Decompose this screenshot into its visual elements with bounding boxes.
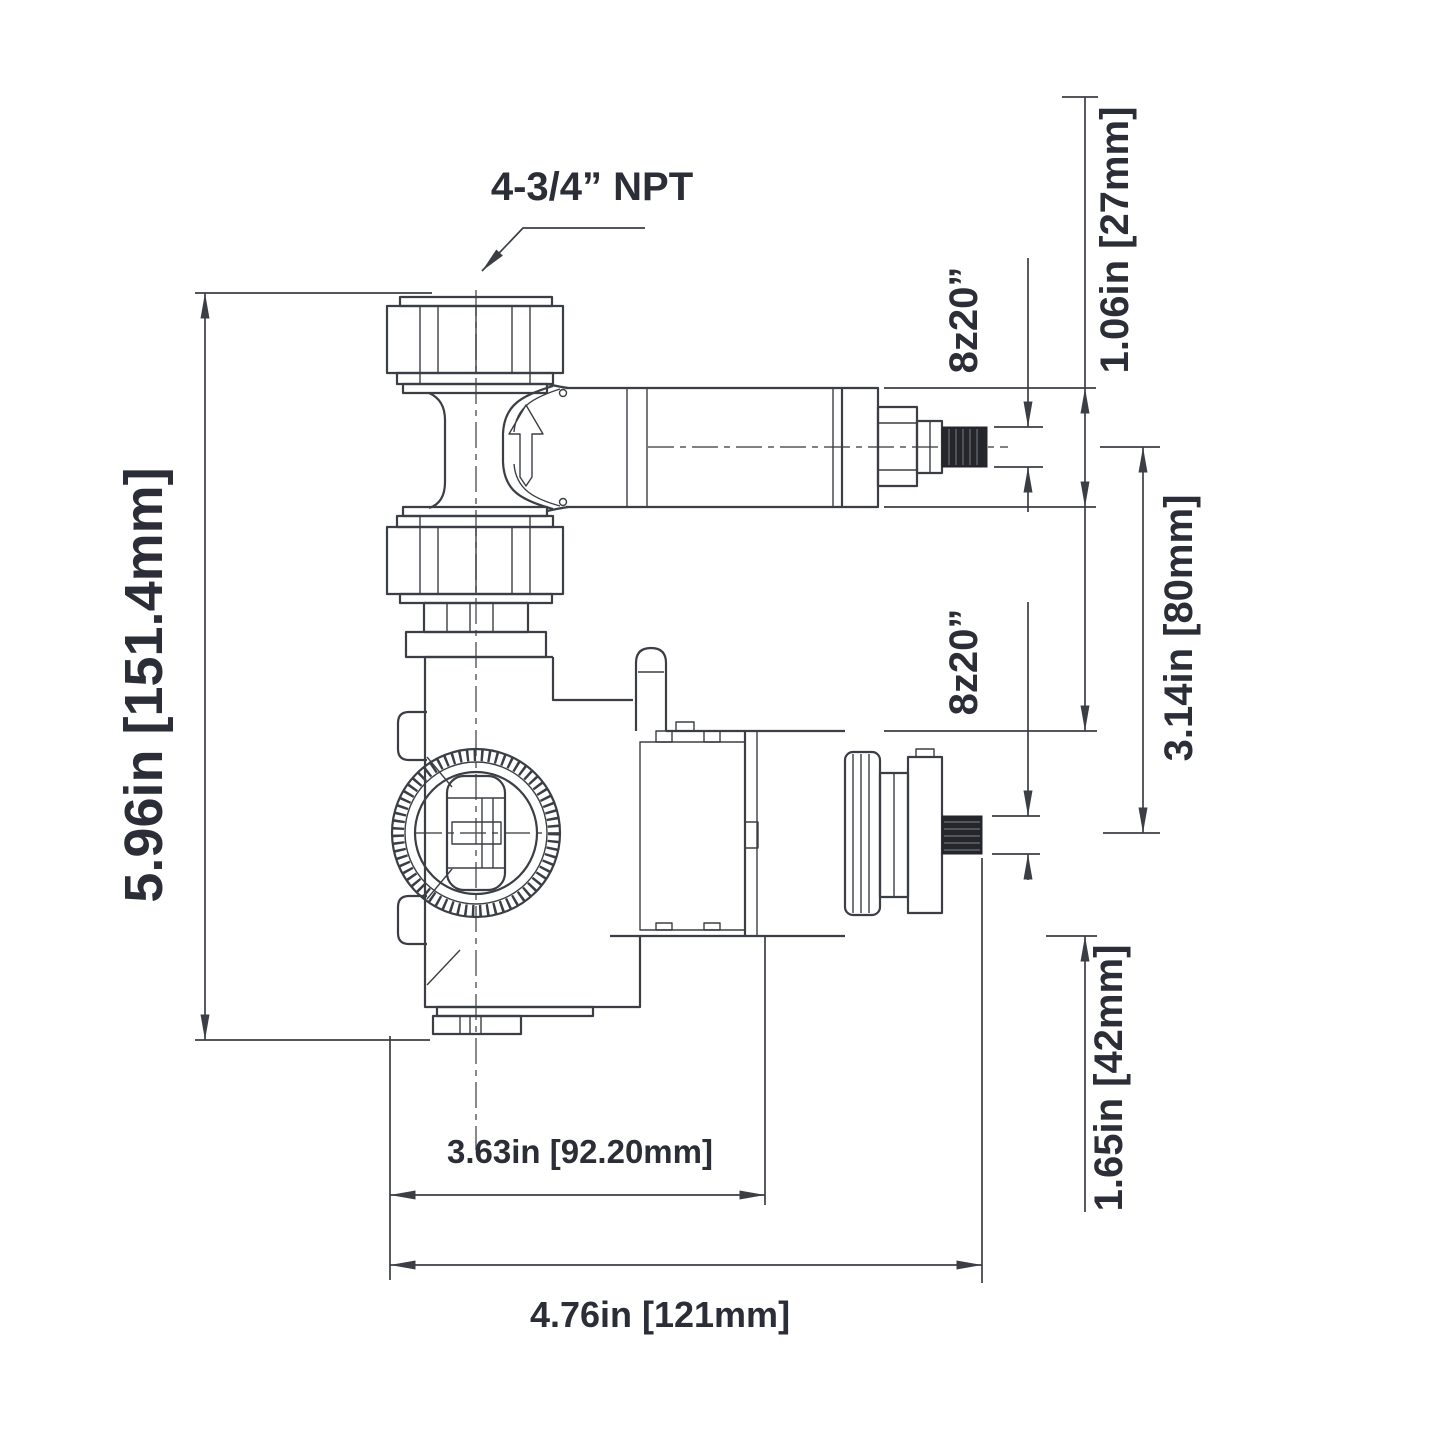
npt-callout-label: 4-3/4” NPT — [491, 165, 693, 209]
dim-label-overall-depth: 4.76in [121mm] — [530, 1294, 790, 1335]
dim-label-overall-height: 5.96in [151.4mm] — [114, 467, 174, 902]
bottom-union-nut — [387, 527, 563, 594]
upper-valve-assembly — [387, 297, 987, 657]
valve-body — [425, 657, 640, 1007]
bottom-outlet — [433, 1016, 521, 1034]
top-tube — [636, 648, 666, 731]
dim-label-body-depth: 3.63in [92.20mm] — [447, 1133, 713, 1170]
top-union-nut — [387, 306, 563, 373]
dimension-labels: 4-3/4” NPT 5.96in [151.4mm] 1.06in [27mm… — [114, 107, 1201, 1335]
dim-label-pipe-od: 1.06in [27mm] — [1093, 107, 1137, 374]
lower-valve-assembly — [392, 648, 982, 1034]
flow-direction-arrow-icon — [509, 405, 543, 486]
dimension-lines — [195, 97, 1160, 1283]
valve-technical-drawing-page: 4-3/4” NPT 5.96in [151.4mm] 1.06in [27mm… — [0, 0, 1445, 1445]
valve-technical-drawing: 4-3/4” NPT 5.96in [151.4mm] 1.06in [27mm… — [0, 0, 1445, 1445]
dim-label-stem-spacing: 3.14in [80mm] — [1157, 495, 1201, 762]
dim-label-valve-od: 1.65in [42mm] — [1087, 945, 1131, 1212]
dim-label-spline-bottom: 8z20” — [942, 609, 986, 716]
dim-label-spline-top: 8z20” — [942, 267, 986, 374]
